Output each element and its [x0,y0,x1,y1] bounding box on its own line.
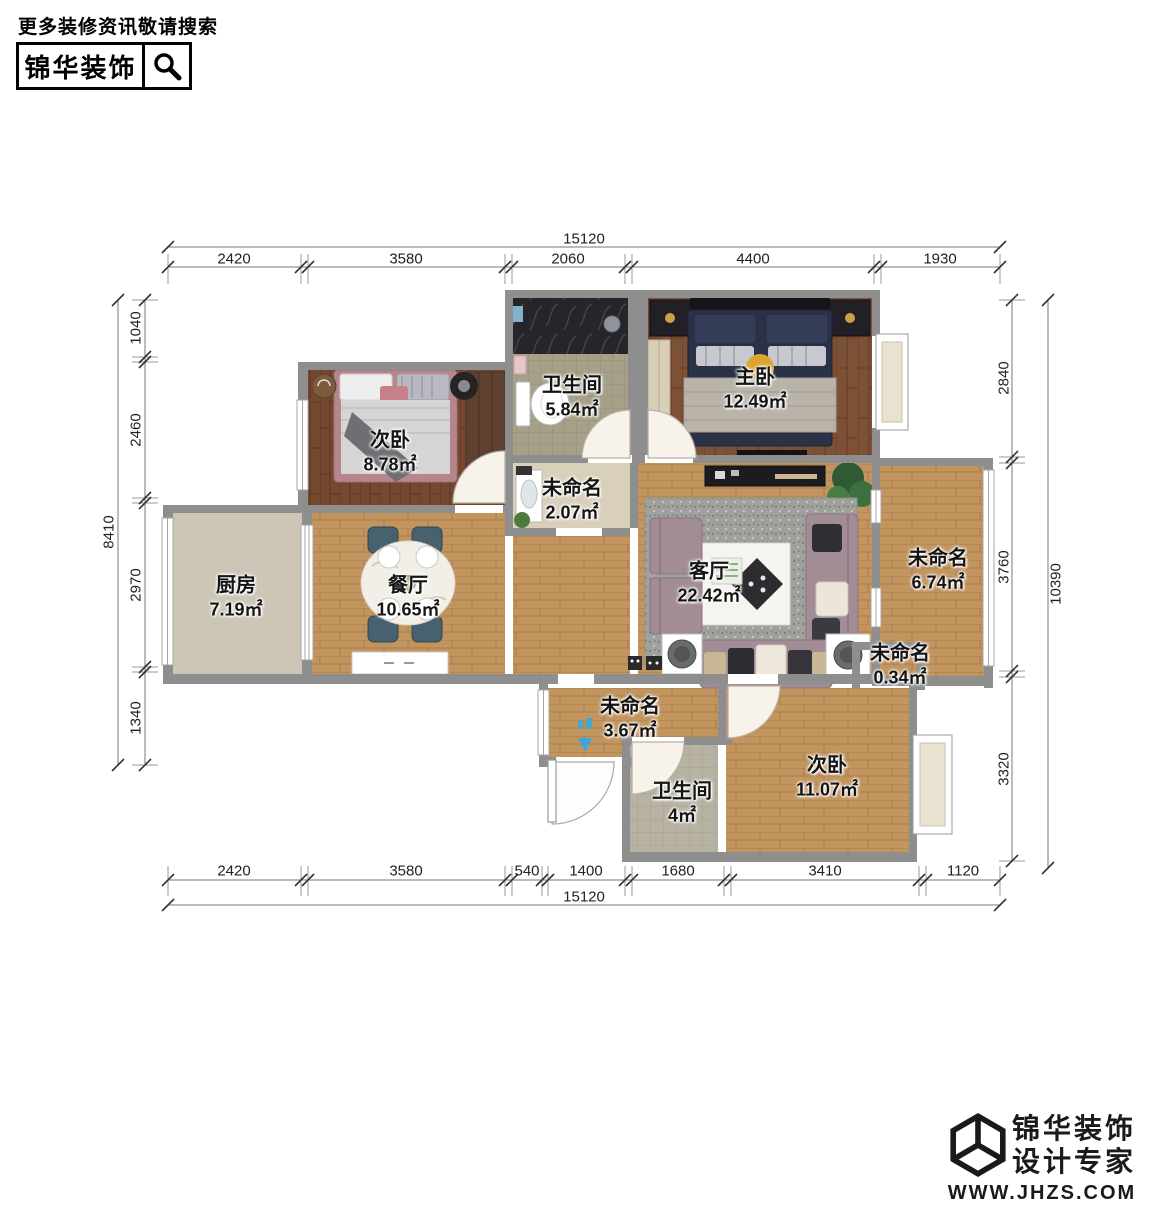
room-label-living: 客厅 22.42㎡ [677,558,740,607]
dim-top-seg-4: 1930 [923,251,956,268]
dim-bottom-seg-1: 3580 [389,863,422,880]
room-label-dining: 餐厅 10.65㎡ [376,572,439,621]
dim-right-total: 10390 [1048,563,1065,605]
room-label-unnamed-207: 未命名 2.07㎡ [542,475,602,524]
search-icon [145,45,189,87]
room-label-unnamed-367: 未命名 3.67㎡ [600,693,660,742]
room-label-bath-bottom: 卫生间 4㎡ [652,778,712,827]
dim-top-seg-1: 3580 [389,251,422,268]
dim-bottom-seg-4: 1680 [661,863,694,880]
dim-top-seg-3: 4400 [736,251,769,268]
dim-left-seg-3: 1340 [128,701,145,734]
dim-right-seg-1: 3760 [996,550,1013,583]
header-tagline: 更多装修资讯敬请搜索 [18,12,218,39]
dim-left-total: 8410 [101,515,118,548]
room-label-unnamed-674: 未命名 6.74㎡ [908,545,968,594]
page: { "header": { "tagline": "更多装修资讯敬请搜索", "… [0,0,1158,1223]
footer-brand-text: 锦华装饰 设计专家 [1012,1112,1136,1178]
dim-bottom-seg-5: 3410 [808,863,841,880]
header-brand-box: 锦华装饰 [16,42,192,90]
dim-right-seg-2: 3320 [996,752,1013,785]
footer-website: WWW.JHZS.COM [944,1182,1140,1205]
dim-bottom-seg-0: 2420 [217,863,250,880]
dim-right-seg-0: 2840 [996,361,1013,394]
room-label-unnamed-034: 未命名 0.34㎡ [870,640,930,689]
dim-bottom-seg-3: 1400 [569,863,602,880]
floor-plan [0,0,1158,1223]
footer-brand-line1: 锦华装饰 [1012,1112,1136,1145]
dim-top-seg-0: 2420 [217,251,250,268]
room-label-kitchen: 厨房 7.19㎡ [209,572,262,621]
dim-bottom-seg-2: 540 [514,863,539,880]
brand-cube-icon [946,1112,1010,1178]
room-label-bath-top: 卫生间 5.84㎡ [542,372,602,421]
dim-bottom-total: 15120 [563,889,605,906]
room-label-bedroom-br: 次卧 11.07㎡ [796,752,858,801]
room-label-bedroom-tl: 次卧 8.78㎡ [363,427,416,476]
dim-bottom-seg-6: 1120 [947,863,979,880]
footer-brand-line2: 设计专家 [1012,1145,1136,1178]
dim-top-total: 15120 [563,231,605,248]
dim-left-seg-2: 2970 [128,568,145,601]
room-label-master-bedroom: 主卧 12.49㎡ [723,364,786,413]
dim-left-seg-1: 2460 [128,413,145,446]
dim-top-seg-2: 2060 [551,251,584,268]
dim-left-seg-0: 1040 [128,311,145,344]
header-brand-name: 锦华装饰 [19,45,142,87]
